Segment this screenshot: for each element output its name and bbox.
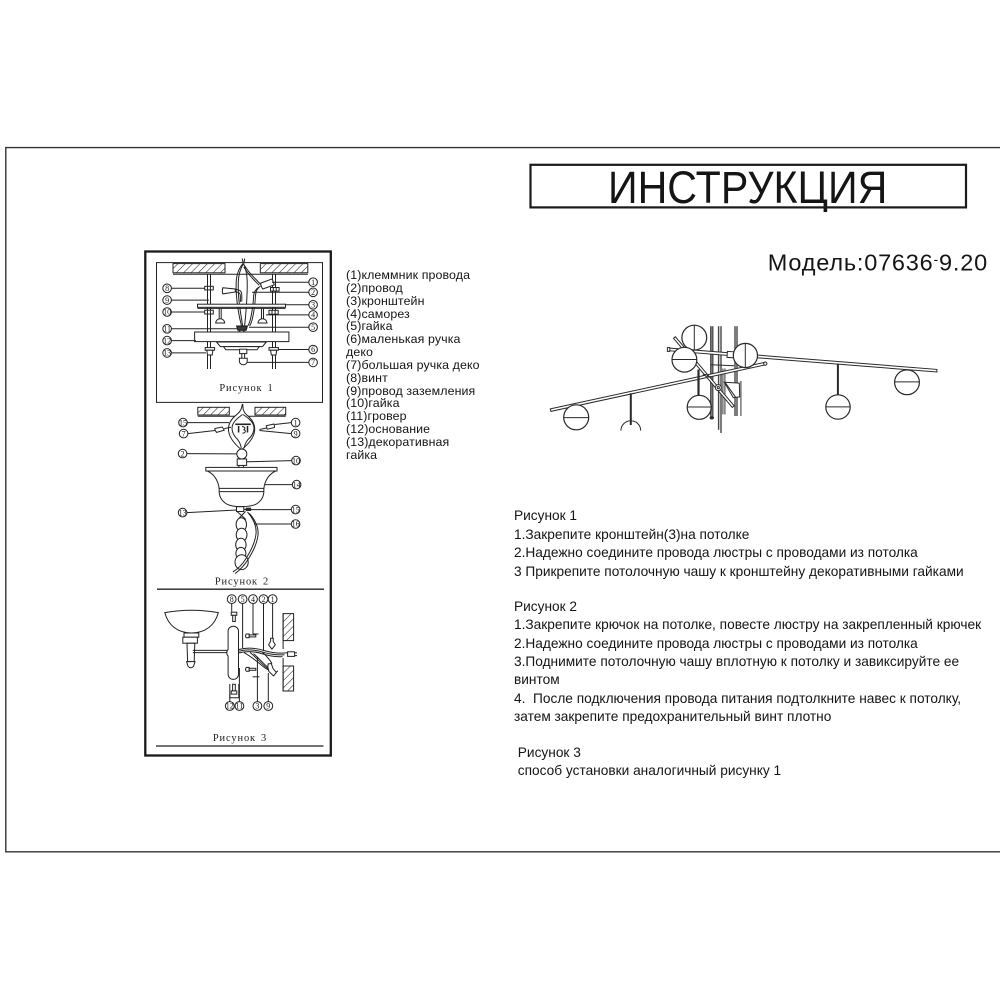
svg-text:8: 8 <box>230 595 234 604</box>
svg-text:10: 10 <box>163 308 171 317</box>
svg-text:5: 5 <box>311 323 315 332</box>
svg-text:13: 13 <box>179 508 187 517</box>
svg-text:1: 1 <box>311 278 315 287</box>
svg-text:8: 8 <box>165 284 169 293</box>
svg-text:16: 16 <box>292 520 300 529</box>
svg-text:3: 3 <box>255 702 259 711</box>
svg-text:6: 6 <box>311 345 315 354</box>
svg-text:11: 11 <box>163 325 171 334</box>
svg-text:15: 15 <box>292 505 300 514</box>
svg-text:12: 12 <box>226 702 234 711</box>
svg-text:3: 3 <box>311 301 315 310</box>
svg-text:9: 9 <box>266 702 270 711</box>
svg-text:14: 14 <box>293 480 301 489</box>
svg-text:12: 12 <box>163 336 171 345</box>
svg-text:13: 13 <box>163 349 171 358</box>
svg-text:1: 1 <box>271 595 275 604</box>
svg-text:Рисунок2: Рисунок2 <box>215 577 269 588</box>
svg-text:5: 5 <box>241 595 245 604</box>
svg-text:15: 15 <box>179 418 187 427</box>
svg-text:7: 7 <box>182 429 186 438</box>
svg-text:7: 7 <box>311 358 315 367</box>
svg-text:Рисунок1: Рисунок1 <box>219 383 273 394</box>
svg-text:10: 10 <box>292 456 300 465</box>
svg-text:2: 2 <box>311 288 315 297</box>
svg-text:2: 2 <box>181 449 185 458</box>
svg-text:9: 9 <box>165 296 169 305</box>
svg-text:1: 1 <box>294 418 298 427</box>
svg-text:11: 11 <box>236 702 244 711</box>
svg-text:4: 4 <box>251 595 255 604</box>
svg-text:Рисунок3: Рисунок3 <box>213 733 267 744</box>
svg-text:4: 4 <box>311 311 315 320</box>
svg-text:2: 2 <box>262 595 266 604</box>
svg-text:9: 9 <box>294 429 298 438</box>
